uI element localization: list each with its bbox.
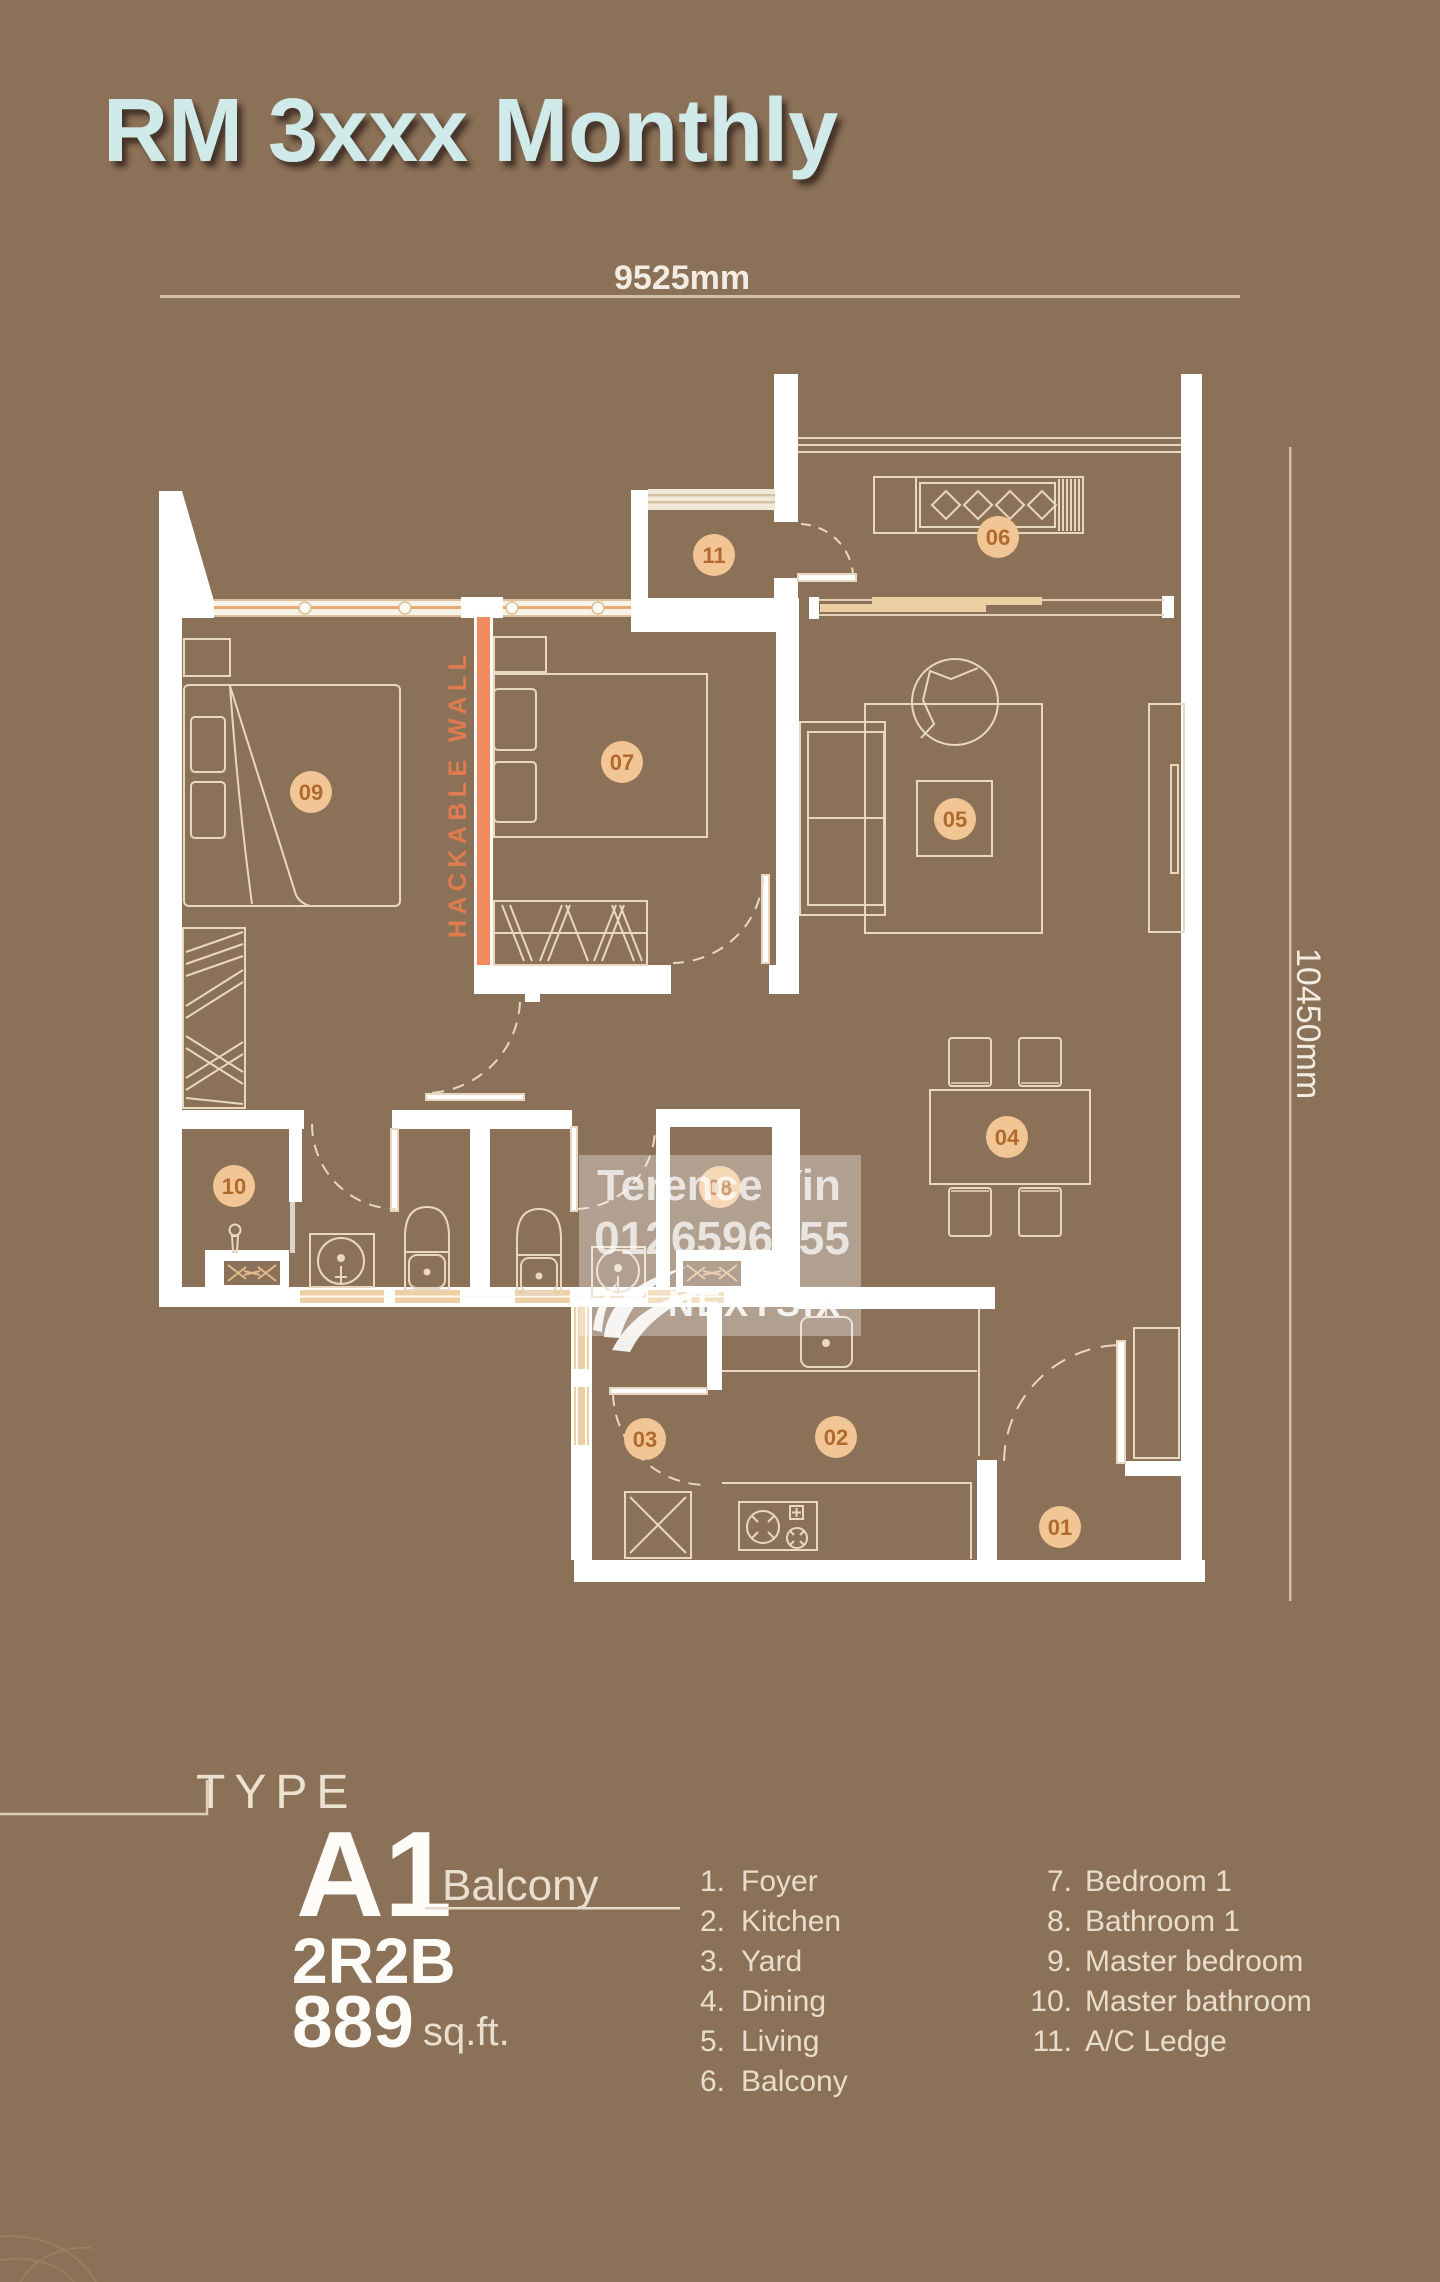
svg-text:04: 04	[995, 1125, 1020, 1150]
svg-text:9.: 9.	[1047, 1945, 1072, 1978]
svg-text:10: 10	[222, 1174, 246, 1199]
svg-text:4.: 4.	[700, 1985, 725, 2018]
svg-text:Yard: Yard	[741, 1945, 802, 1978]
svg-text:11.: 11.	[1033, 2025, 1072, 2058]
svg-text:NEXTSIX: NEXTSIX	[668, 1283, 843, 1324]
svg-text:Dining: Dining	[741, 1985, 826, 2018]
svg-text:8.: 8.	[1047, 1905, 1072, 1938]
svg-text:1.: 1.	[700, 1865, 725, 1898]
svg-text:sq.ft.: sq.ft.	[423, 2010, 510, 2054]
svg-text:Terence Yin: Terence Yin	[597, 1161, 841, 1210]
svg-text:11: 11	[702, 543, 725, 568]
svg-text:A/C Ledge: A/C Ledge	[1085, 2025, 1227, 2058]
svg-text:06: 06	[986, 525, 1010, 550]
svg-text:6.: 6.	[700, 2065, 725, 2098]
svg-text:10450mm: 10450mm	[1289, 948, 1327, 1099]
svg-text:889: 889	[292, 1982, 414, 2063]
svg-text:Balcony: Balcony	[741, 2065, 848, 2098]
svg-text:01: 01	[1048, 1515, 1072, 1540]
svg-text:03: 03	[633, 1427, 657, 1452]
svg-text:Kitchen: Kitchen	[741, 1905, 841, 1938]
svg-text:3.: 3.	[700, 1945, 725, 1978]
svg-text:Master bedroom: Master bedroom	[1085, 1945, 1303, 1978]
svg-text:10.: 10.	[1030, 1985, 1072, 2018]
svg-text:Living: Living	[741, 2025, 819, 2058]
svg-text:HACKABLE WALL: HACKABLE WALL	[444, 651, 472, 938]
svg-text:07: 07	[610, 750, 634, 775]
svg-text:Bathroom 1: Bathroom 1	[1085, 1905, 1240, 1938]
svg-text:7.: 7.	[1047, 1865, 1072, 1898]
svg-text:02: 02	[824, 1425, 848, 1450]
svg-text:09: 09	[299, 780, 323, 805]
svg-text:Master bathroom: Master bathroom	[1085, 1985, 1312, 2018]
svg-text:RM 3xxx Monthly: RM 3xxx Monthly	[103, 81, 838, 181]
svg-text:9525mm: 9525mm	[614, 259, 750, 297]
svg-text:5.: 5.	[700, 2025, 725, 2058]
svg-text:A1: A1	[296, 1806, 452, 1942]
svg-text:2.: 2.	[700, 1905, 725, 1938]
svg-text:0126596855: 0126596855	[594, 1212, 850, 1264]
svg-text:05: 05	[943, 807, 967, 832]
svg-text:Bedroom 1: Bedroom 1	[1085, 1865, 1232, 1898]
svg-text:Balcony: Balcony	[442, 1861, 599, 1910]
svg-text:Foyer: Foyer	[741, 1865, 818, 1898]
